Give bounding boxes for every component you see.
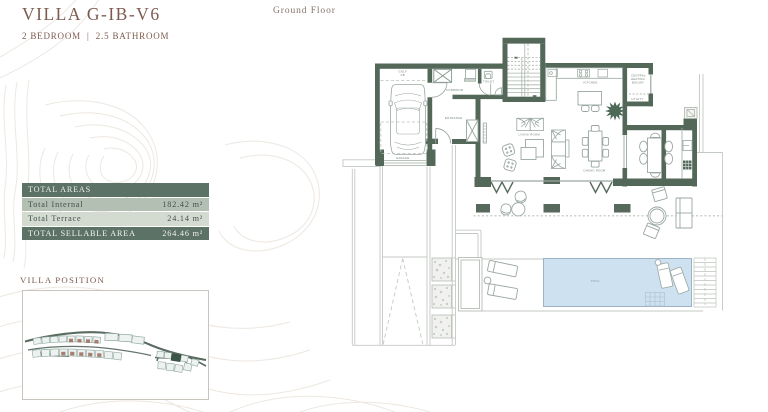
svg-text:CORRIDOR: CORRIDOR: [446, 88, 463, 92]
svg-text:POOL: POOL: [591, 279, 600, 283]
svg-text:DINING ROOM: DINING ROOM: [584, 169, 606, 173]
svg-text:GARAGE: GARAGE: [396, 156, 409, 160]
svg-text:KITCHEN: KITCHEN: [584, 81, 598, 85]
svg-text:TOILET: TOILET: [483, 80, 494, 84]
svg-text:BOILER: BOILER: [632, 81, 644, 85]
svg-text:ENTRANCE: ENTRANCE: [445, 116, 462, 120]
svg-text:LIVING ROOM: LIVING ROOM: [519, 133, 541, 137]
svg-text:CB: CB: [401, 73, 405, 77]
svg-text:UTILITY: UTILITY: [632, 97, 644, 101]
